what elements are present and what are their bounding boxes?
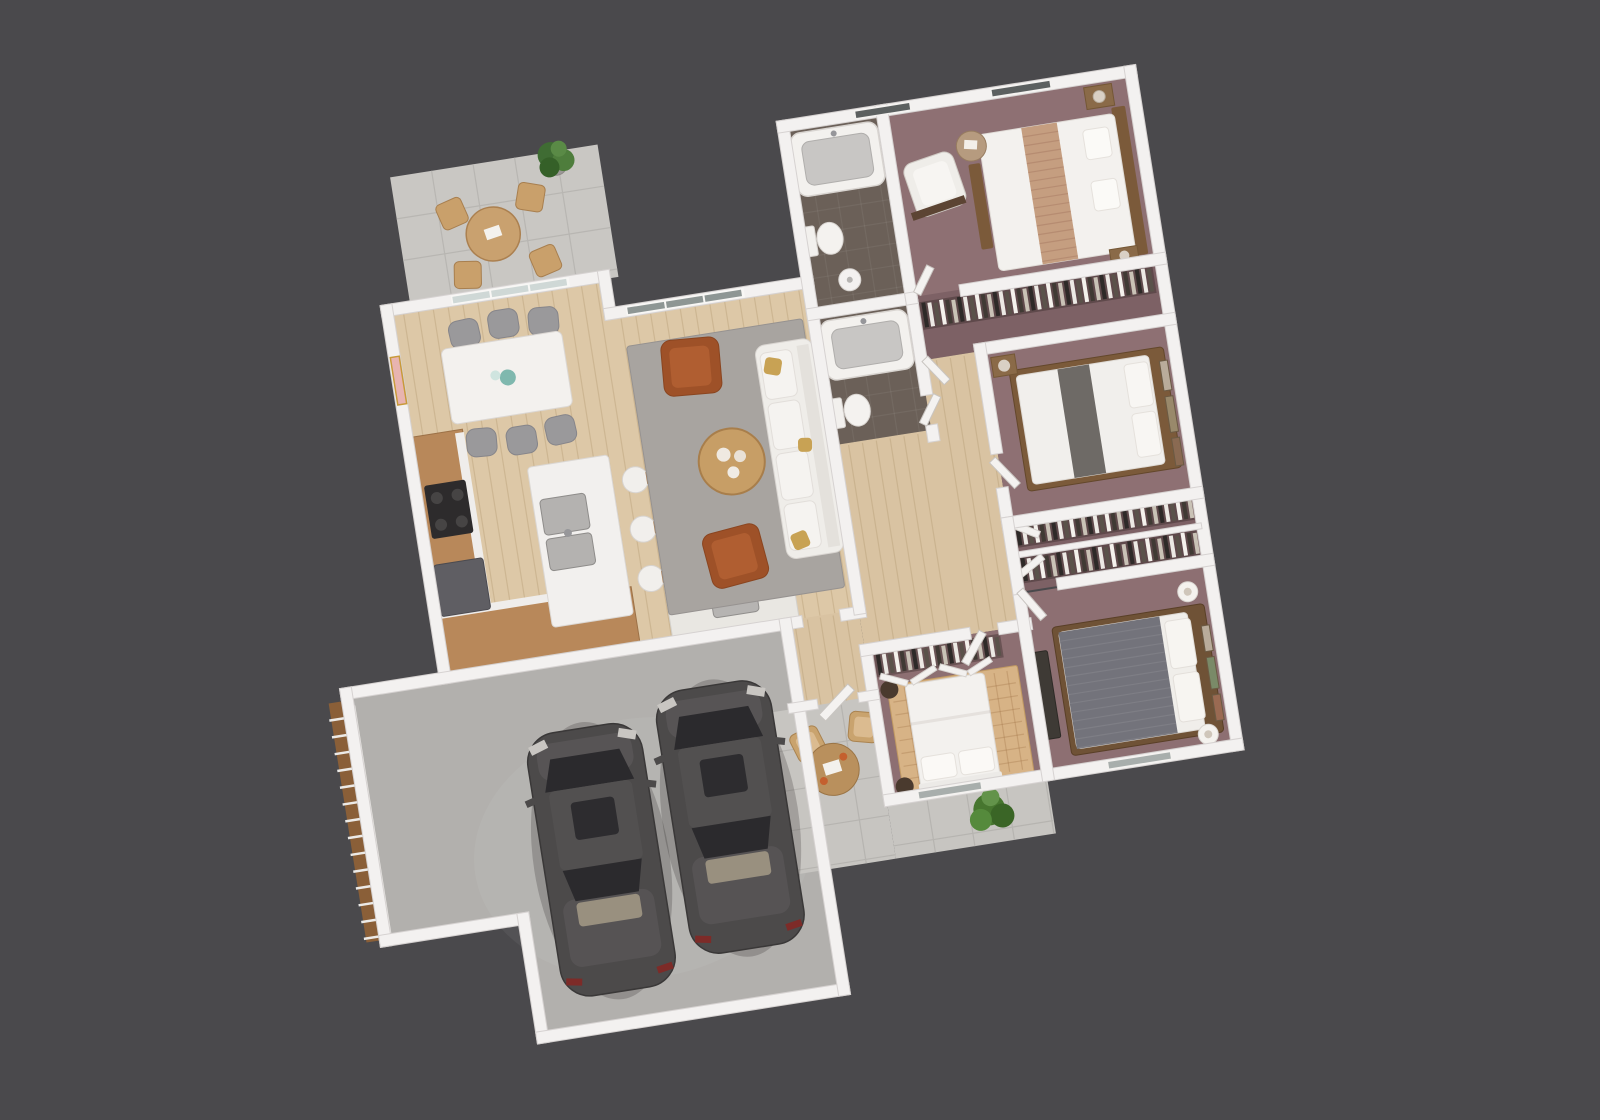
island-sink [539,493,590,536]
island-sink [546,532,596,571]
car-taillight [566,978,582,985]
wall [926,424,941,443]
dining-chair [486,307,520,339]
floor-plan-canvas [0,0,1600,1120]
floor-plan-viewport [0,0,1600,1120]
bed3-pillow [920,752,957,781]
car-sunroof [570,796,619,840]
dining-chair [466,427,498,458]
master-bed-pillow [1082,126,1112,160]
master-side-table-book [964,140,977,150]
armchair-cushion [669,345,712,388]
car-mirror [645,780,657,788]
car-taillight [695,936,711,943]
sofa-cushion [775,450,814,501]
car-sunroof [699,753,748,797]
floor-plan-svg [0,0,1600,1120]
kitchen-stove [424,479,474,539]
dining-chair [505,424,539,456]
kitchen-fridge [433,558,491,617]
bed3-pillow [958,746,995,775]
bed4-duvet [1059,616,1178,749]
master-bed-pillow [1090,178,1120,212]
throw-pillow [763,357,782,376]
patio-top-chair [454,261,481,288]
throw-pillow [798,438,812,452]
car-mirror [774,737,786,745]
patio-top-chair [515,182,546,213]
